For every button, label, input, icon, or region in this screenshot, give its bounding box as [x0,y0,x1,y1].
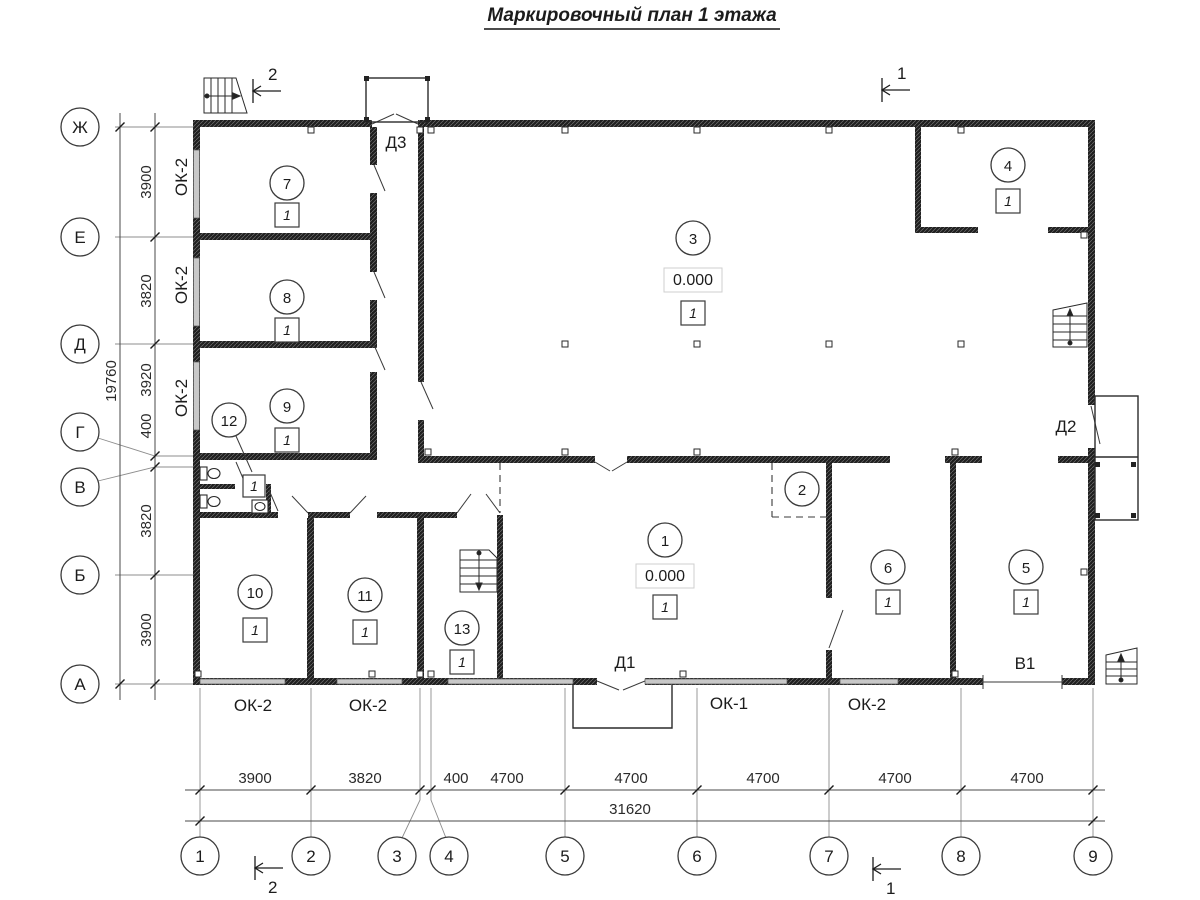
svg-text:6: 6 [884,560,892,577]
svg-text:1: 1 [283,322,291,338]
axis-row-e-label: Е [74,228,85,247]
walls [193,120,1095,685]
svg-text:1: 1 [897,64,906,83]
stair-icon-right-wall [1053,303,1087,347]
porch-top [366,78,428,122]
dim-h-4: 4700 [490,770,523,787]
axis-col-4-label: 4 [444,847,453,866]
window-ok2-bottom-1 [200,679,285,684]
window-ok2-left-2 [194,258,200,326]
dim-v-1: 3900 [138,165,155,198]
svg-text:0.000: 0.000 [673,272,713,289]
dim-h-total: 31620 [609,801,651,818]
dim-v-3: 3920 [138,363,155,396]
axis-col-5-label: 5 [560,847,569,866]
dim-v-6: 3900 [138,613,155,646]
dimensions-bottom: 3900 3820 400 4700 4700 4700 4700 4700 3… [185,770,1105,826]
axis-col-8-label: 8 [956,847,965,866]
svg-text:4: 4 [1004,158,1012,175]
svg-text:1: 1 [250,478,258,494]
stair-icon-room13 [460,550,497,592]
svg-text:1: 1 [1022,594,1030,610]
svg-text:1: 1 [886,879,895,898]
sink-icon [252,500,268,513]
window-label-left-1: ОК-2 [172,158,191,196]
axis-row-d-label: Д [74,335,86,354]
window-label-bottom-3: ОК-1 [710,694,748,713]
svg-text:2: 2 [268,878,277,897]
toilet-icon-2 [200,495,220,508]
floor-plan-sheet: Маркировочный план 1 этажа [0,0,1200,900]
axis-col-1-label: 1 [195,847,204,866]
svg-text:1: 1 [283,432,291,448]
window-label-bottom-1: ОК-2 [234,696,272,715]
dim-h-1: 3900 [238,770,271,787]
window-ok2-bottom-2 [337,679,402,684]
window-label-bottom-4: ОК-2 [848,695,886,714]
svg-text:1: 1 [884,594,892,610]
svg-text:12: 12 [221,413,238,430]
window-ok2-left-3 [194,362,200,430]
axis-col-2-label: 2 [306,847,315,866]
dim-h-7: 4700 [878,770,911,787]
svg-text:1: 1 [251,622,259,638]
svg-text:10: 10 [247,585,264,602]
dim-h-6: 4700 [746,770,779,787]
axis-row-zh-label: Ж [72,118,88,137]
dim-h-3: 400 [443,770,468,787]
row-axis-markers: Ж Е Д Г В Б А [61,108,99,703]
svg-text:0.000: 0.000 [645,568,685,585]
svg-text:3: 3 [689,231,697,248]
section-mark-2-top: 2 [253,65,281,103]
porch-right [1095,396,1138,520]
dim-h-5: 4700 [614,770,647,787]
axis-row-g-label: Г [75,423,84,442]
axis-col-7-label: 7 [824,847,833,866]
svg-text:1: 1 [1004,193,1012,209]
svg-text:1: 1 [361,624,369,640]
dim-h-8: 4700 [1010,770,1043,787]
dim-v-total: 19760 [103,360,120,402]
door-d2-label: Д2 [1056,417,1077,436]
svg-text:11: 11 [357,588,373,605]
dim-v-5: 3820 [138,504,155,537]
svg-text:9: 9 [283,399,291,416]
toilet-icon-1 [200,467,220,480]
page-title: Маркировочный план 1 этажа [487,5,777,26]
stair-icon-bottom-right [1106,648,1137,684]
svg-text:2: 2 [798,482,806,499]
axis-col-6-label: 6 [692,847,701,866]
axis-row-a-label: А [74,675,86,694]
section-mark-1-bottom: 1 [873,857,901,898]
window-label-left-2: ОК-2 [172,266,191,304]
section-mark-1-top: 1 [882,64,910,102]
gate-v1-opening [983,675,1062,689]
col-axis-markers: 1 2 3 4 5 6 7 8 9 [181,837,1112,875]
svg-text:1: 1 [283,207,291,223]
svg-text:1: 1 [458,654,466,670]
dimensions-left: 3900 3820 3920 400 3820 3900 19760 [103,113,160,700]
axis-col-9-label: 9 [1088,847,1097,866]
floor-plan-drawing: Маркировочный план 1 этажа [0,0,1200,900]
svg-text:8: 8 [283,290,291,307]
dim-v-2: 3820 [138,274,155,307]
porch-bottom [573,685,672,728]
door-d1-label: Д1 [615,653,636,672]
window-ok1-bottom [645,679,787,684]
axis-row-v-label: В [74,478,85,497]
window-label-left-3: ОК-2 [172,379,191,417]
dim-h-2: 3820 [348,770,381,787]
axis-row-b-label: Б [74,566,85,585]
svg-text:13: 13 [454,621,471,638]
window-label-bottom-2: ОК-2 [349,696,387,715]
section-mark-2-bottom: 2 [255,856,283,897]
svg-text:7: 7 [283,176,291,193]
gate-v1-label: В1 [1015,654,1036,673]
door-d3-label: Д3 [386,133,407,152]
svg-text:1: 1 [661,599,669,615]
svg-text:2: 2 [268,65,277,84]
dashed-lines [500,463,826,517]
axis-col-3-label: 3 [392,847,401,866]
window-ok2-bottom-3 [840,679,898,684]
window-bottom-strip [448,679,573,684]
window-ok2-left-1 [194,150,200,218]
svg-text:1: 1 [689,305,697,321]
svg-text:5: 5 [1022,560,1030,577]
dim-v-4: 400 [138,413,155,438]
stair-icon-top-left [204,78,247,113]
svg-text:1: 1 [661,533,669,550]
